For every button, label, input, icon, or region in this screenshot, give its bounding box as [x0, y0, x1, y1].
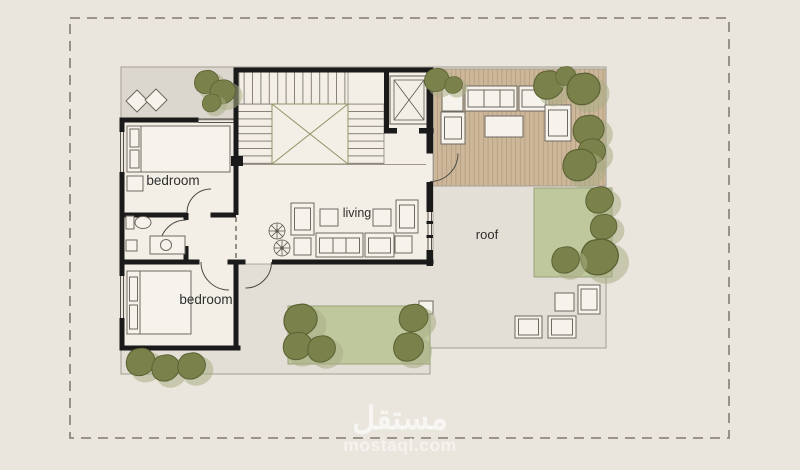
floor-drain	[126, 240, 137, 251]
coffee-table	[485, 116, 523, 137]
vanity	[150, 236, 185, 254]
floor-plan-canvas: bedroom bedroom living roof مستقل mostaq…	[0, 0, 800, 470]
label-bedroom-upper: bedroom	[146, 173, 199, 188]
label-roof: roof	[476, 227, 499, 242]
toilet-tank	[126, 216, 134, 229]
potted-plant	[274, 240, 290, 256]
label-bedroom-lower: bedroom	[179, 292, 232, 307]
side-table	[373, 209, 391, 226]
elevator	[390, 76, 428, 124]
potted-plant	[269, 223, 285, 239]
toilet-bowl	[135, 217, 151, 229]
nightstand	[127, 176, 143, 191]
floor-plan-drawing: bedroom bedroom living roof	[0, 0, 800, 470]
label-living: living	[343, 206, 372, 220]
side-table	[320, 209, 338, 226]
outdoor-table	[555, 293, 574, 311]
